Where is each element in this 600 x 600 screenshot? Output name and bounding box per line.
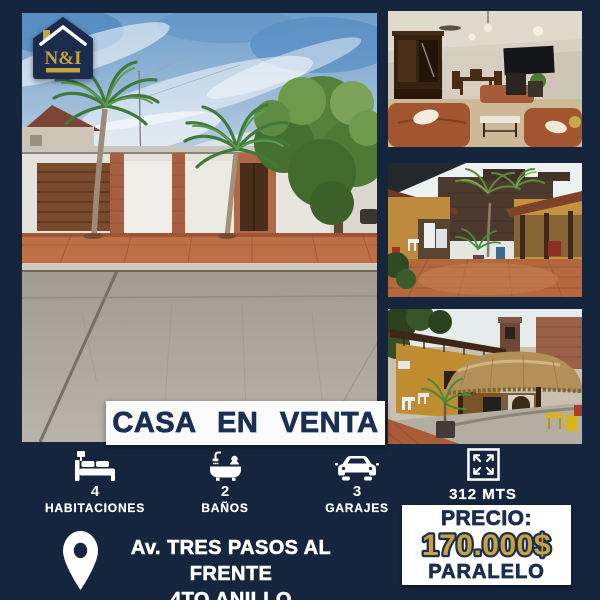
patio-scene (388, 309, 582, 444)
car-icon (305, 448, 409, 481)
house-badge-icon: N&I (33, 17, 93, 79)
bathrooms-label: BAÑOS (173, 501, 277, 515)
logo-badge: N&I (33, 17, 93, 79)
bathtub-icon (173, 448, 277, 481)
right-building (506, 191, 582, 261)
courtyard-scene (388, 163, 582, 297)
size-label: 312 MTS (431, 488, 535, 502)
bathrooms-count: 2 (173, 484, 277, 500)
address-line-2: 4TO ANILLO (88, 587, 374, 600)
living-room-scene (388, 11, 582, 147)
sofa-left (388, 103, 470, 147)
price-label: PRECIO: (441, 508, 532, 530)
price-amount: 170.000$ (422, 529, 551, 562)
courtyard-photo (388, 163, 582, 297)
feature-bedrooms: 4 HABITACIONES (38, 448, 152, 515)
garages-count: 3 (305, 484, 409, 500)
feature-size: 312 MTS (431, 448, 535, 502)
title-banner: CASA EN VENTA (106, 401, 385, 445)
expand-icon (431, 448, 535, 481)
wood-cabinet (392, 31, 444, 105)
patio-photo (388, 309, 582, 444)
feature-bathrooms: 2 BAÑOS (173, 448, 277, 515)
page-title: CASA EN VENTA (112, 407, 378, 440)
real-estate-flyer: N&I CASA EN VENTA 4 HABITACIONES (0, 0, 600, 600)
address-block: Av. TRES PASOS AL FRENTE 4TO ANILLO (88, 535, 374, 600)
bedrooms-count: 4 (38, 484, 152, 500)
bed-icon (38, 448, 152, 481)
logo-text: N&I (45, 48, 82, 69)
price-box: PRECIO: 170.000$ PARALELO (402, 505, 571, 585)
price-note: PARALELO (428, 562, 545, 583)
bedrooms-label: HABITACIONES (38, 501, 152, 515)
sofa-right (524, 108, 582, 147)
garages-label: GARAJES (305, 501, 409, 515)
left-building (388, 189, 458, 261)
address-line-1: Av. TRES PASOS AL FRENTE (88, 535, 374, 587)
feature-garages: 3 GARAJES (305, 448, 409, 515)
price-amount-graphic: 170.000$ (402, 529, 571, 563)
living-room-photo (388, 11, 582, 147)
